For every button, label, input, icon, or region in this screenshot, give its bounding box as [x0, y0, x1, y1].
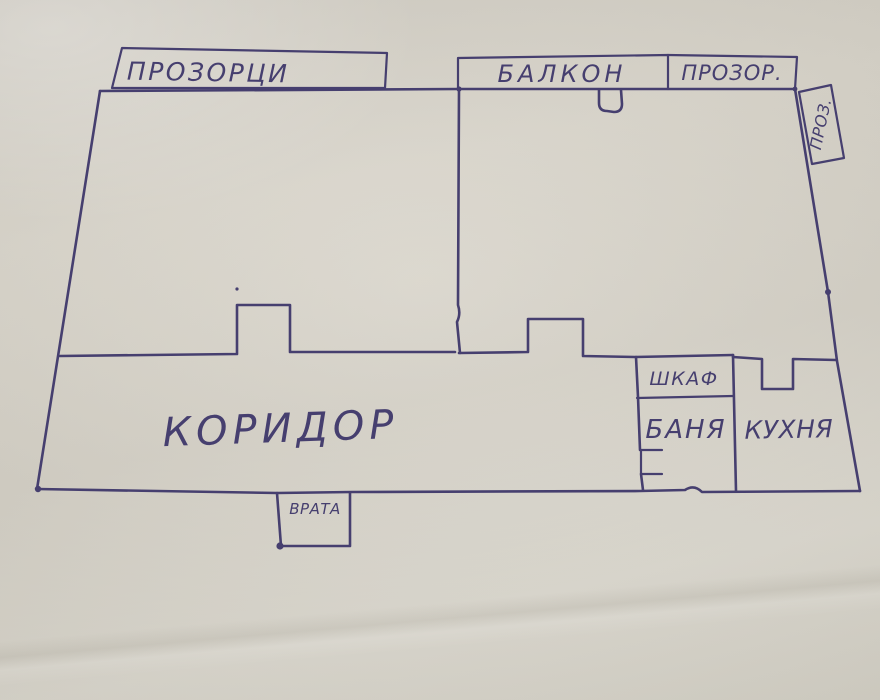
- bathroom-label: БАНЯ: [645, 415, 726, 445]
- ink-dot-right-wall: [825, 289, 831, 295]
- ink-dot-top-right-corner: [793, 87, 798, 92]
- floor-plan-drawing: ПРОЗОРЦИ БАЛКОН ПРОЗОР. ПРОЗ. ШКАФ БАНЯ …: [0, 0, 880, 700]
- kitchen-label: КУХНЯ: [744, 414, 833, 445]
- outer-left-wall: [37, 91, 100, 489]
- bathroom-door-mark: [640, 450, 662, 474]
- bathroom-kitchen-divider-wall: [733, 355, 736, 491]
- paper-photo-background: ПРОЗОРЦИ БАЛКОН ПРОЗОР. ПРОЗ. ШКАФ БАНЯ …: [0, 0, 880, 700]
- closet-label: ШКАФ: [649, 368, 718, 390]
- middle-dividing-wall: [457, 89, 460, 353]
- ink-blob-door-box-corner: [276, 542, 283, 549]
- outer-top-wall: [100, 89, 795, 91]
- closet-bottom-wall: [637, 396, 733, 398]
- ink-blob-bottom-left-corner: [35, 486, 41, 492]
- balcony-label: БАЛКОН: [498, 60, 627, 88]
- right-room-bottom-wall-with-door-notch: [459, 319, 733, 357]
- window-side-right-label: ПРОЗ.: [806, 96, 835, 151]
- corridor-label: КОРИДОР: [162, 402, 399, 456]
- windows-left-label: ПРОЗОРЦИ: [127, 57, 290, 89]
- ink-dot-left-room: [235, 287, 238, 290]
- balcony-door-mark: [599, 90, 622, 112]
- entrance-door-label: ВРАТА: [289, 500, 341, 518]
- window-top-right-label: ПРОЗОР.: [681, 61, 782, 85]
- left-room-bottom-wall-with-door-notch: [60, 305, 455, 356]
- ink-dot-mid-junction: [456, 86, 461, 91]
- kitchen-top-wall-with-door-notch: [733, 357, 836, 389]
